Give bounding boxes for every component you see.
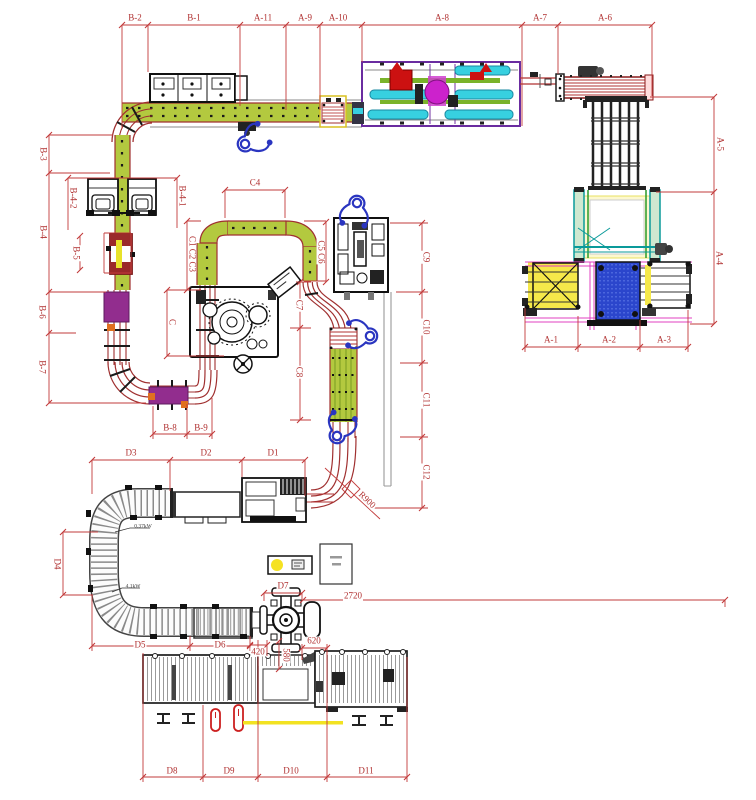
dim-label-a7: A-7 (532, 14, 548, 23)
dim-label-d10: D10 (282, 767, 300, 776)
dim-label-b8: B-8 (162, 424, 178, 433)
layout-drawing-svg (0, 0, 756, 800)
dim-label-d5: D5 (134, 641, 147, 650)
dim-label-d3: D3 (125, 449, 138, 458)
dim-label-a1: A-1 (543, 336, 559, 345)
dim-label-b7: B-7 (38, 359, 47, 375)
dim-label-420: 420 (250, 648, 266, 657)
dim-label-d1: D1 (267, 449, 280, 458)
labeler-c5c6 (334, 218, 388, 300)
dim-label-c10: C10 (422, 318, 431, 335)
dim-label-a9: A-9 (297, 14, 313, 23)
dim-label-d11: D11 (357, 767, 374, 776)
dim-label-b3: B-3 (39, 146, 48, 162)
dim-label-a6: A-6 (597, 14, 613, 23)
motor-power-annotation: 0.37kW (133, 524, 153, 530)
dim-label-d2: D2 (200, 449, 213, 458)
dim-label-d4: D4 (53, 558, 62, 571)
dim-label-b42: B-4-2 (69, 187, 78, 210)
dim-label-d7: D7 (277, 582, 290, 591)
dim-label-2720: 2720 (343, 592, 363, 601)
transfer-a7 (520, 72, 558, 88)
dim-label-d8: D8 (166, 767, 179, 776)
dim-label-a10: A-10 (328, 14, 349, 23)
dim-label-a4: A-4 (715, 250, 724, 266)
machine-d1 (242, 478, 334, 522)
dim-label-c11: C11 (422, 392, 431, 409)
dim-label-a11: A-11 (253, 14, 273, 23)
dim-label-b9: B-9 (193, 424, 209, 433)
dim-label-a8: A-8 (434, 14, 450, 23)
dim-label-c: C (168, 318, 177, 326)
dim-label-a5: A-5 (716, 136, 725, 152)
dim-label-c9: C9 (422, 251, 431, 264)
cad-layout-drawing: B-2 B-1 A-11 A-9 A-10 A-8 A-7 A-6 A-5 A-… (0, 0, 756, 800)
dim-label-b4: B-4 (39, 224, 48, 240)
dim-label-c12: C12 (422, 463, 431, 480)
dim-label-a3: A-3 (656, 336, 672, 345)
dim-label-b2: B-2 (127, 14, 143, 23)
dim-label-d6: D6 (214, 641, 227, 650)
pallet-items (157, 705, 393, 731)
pallet-conveyors-a123 (522, 262, 692, 331)
motor-power-annotation: 4.1kW (125, 584, 142, 590)
dim-label-d9: D9 (223, 767, 236, 776)
outfeed-conveyor-d8-d11 (143, 650, 408, 713)
dim-label-c7: C7 (295, 299, 304, 312)
palletizer-frame-a4 (574, 187, 673, 263)
machine-a9-a10 (320, 96, 346, 127)
dim-label-a2: A-2 (601, 336, 617, 345)
dim-label-b1: B-1 (186, 14, 202, 23)
dim-label-620: 620 (306, 637, 322, 646)
dim-label-580: 580 (282, 647, 291, 663)
machine-d2 (172, 492, 240, 523)
dim-label-c56: C5 C6 (317, 239, 326, 264)
control-panel (268, 556, 312, 574)
filler-a8 (352, 62, 520, 126)
diverter-a6 (556, 66, 653, 101)
dim-label-c8: C8 (295, 366, 304, 379)
elevator-a5 (583, 96, 649, 190)
cabinet (320, 544, 352, 584)
dim-label-b41: B-4-1 (178, 185, 187, 208)
dim-label-c123: C1 C2 C3 (188, 235, 197, 273)
dim-label-b6: B-6 (38, 304, 47, 320)
dim-label-b5: B-5 (72, 245, 81, 261)
dim-label-c4: C4 (249, 179, 262, 188)
